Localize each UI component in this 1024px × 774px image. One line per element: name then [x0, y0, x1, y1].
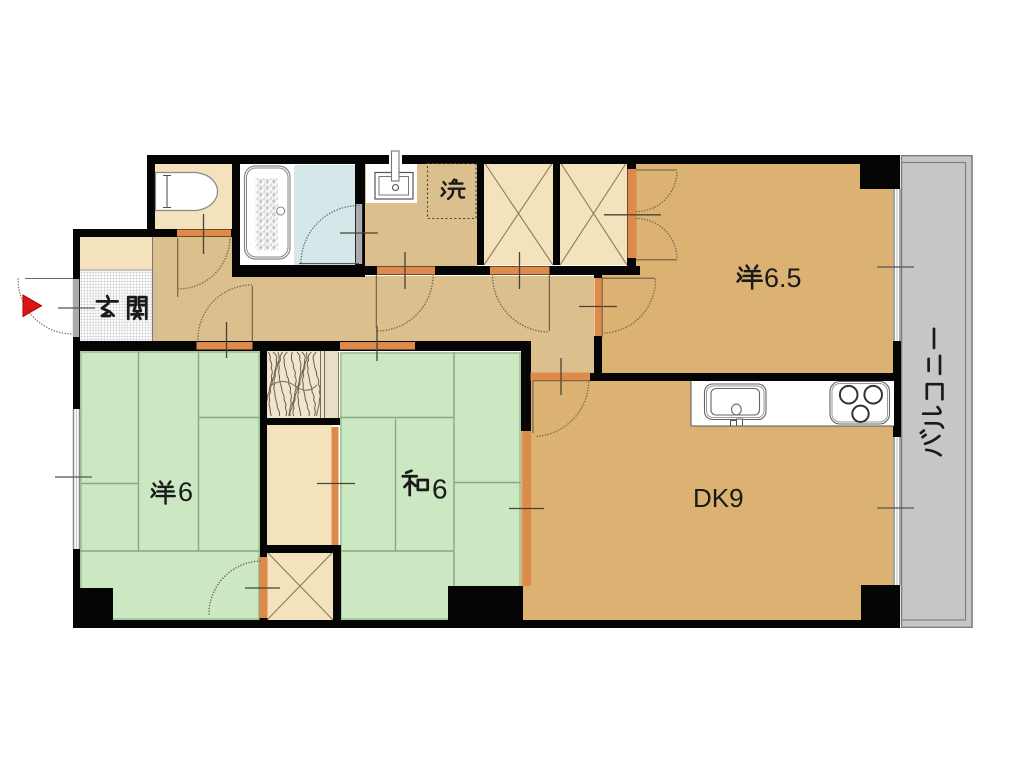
svg-text:6: 6: [432, 474, 448, 505]
svg-text:DK9: DK9: [693, 483, 744, 513]
svg-text:6.5: 6.5: [764, 263, 802, 293]
svg-text:6: 6: [178, 477, 193, 507]
